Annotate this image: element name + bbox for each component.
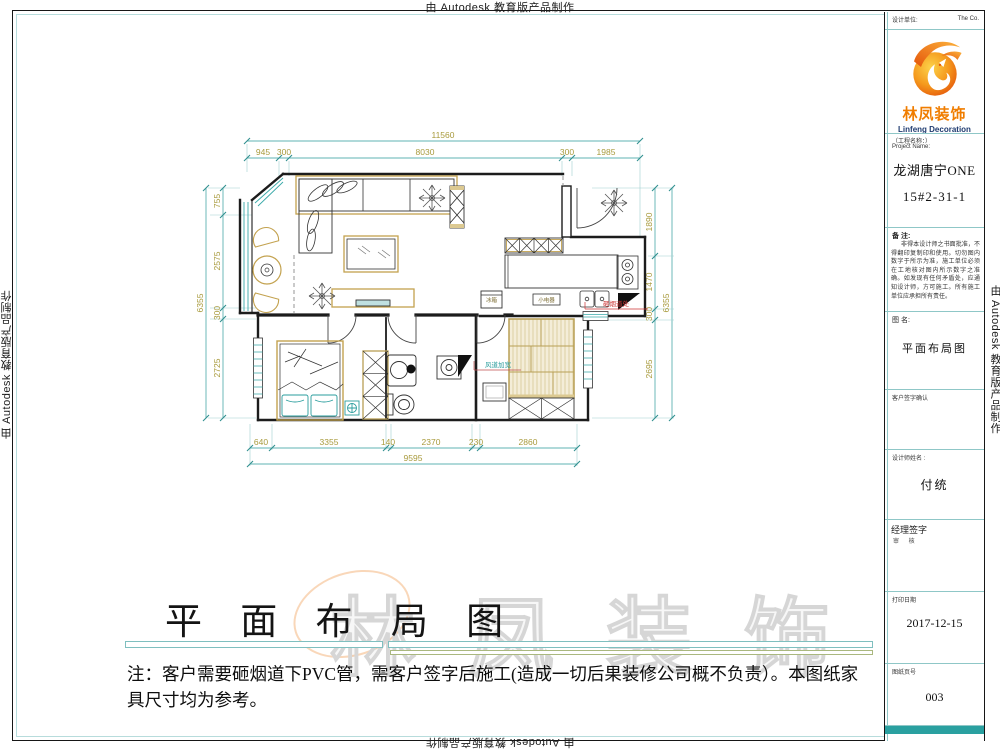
project-row: （工程名称：） Project Name: 龙湖唐宁ONE 15#2-31-1 <box>885 134 984 228</box>
fridge-label: 冰箱 <box>486 296 498 304</box>
svg-text:755: 755 <box>212 194 222 208</box>
dim-bottom-overall: 9595 <box>404 453 423 463</box>
company-name-en: Linfeng Decoration <box>885 125 984 134</box>
manager-review-label: 审 核 <box>893 536 919 545</box>
autodesk-banner-bottom: 由 Autodesk 教育版产品制作 <box>0 735 1000 750</box>
autodesk-banner-right: 由 Autodesk 教育版产品制作 <box>987 285 1000 434</box>
stove <box>617 256 638 289</box>
dim-top-overall: 11560 <box>431 130 454 140</box>
dimension-lines: 11560 945 300 8030 300 1985 6355 755 257… <box>195 130 675 467</box>
page-number-label: 图纸页号 <box>892 667 916 676</box>
toilet <box>386 394 414 415</box>
coffee-table <box>344 236 398 272</box>
svg-text:2725: 2725 <box>212 358 222 377</box>
designer-label: 设计师姓名 : <box>892 453 925 462</box>
construction-note: 注：客户需要砸烟道下PVC管，需客户签字后施工(造成一切后果装修公司概不负责）。… <box>127 661 875 714</box>
drawing-name-row: 图 名: 平面布局图 <box>885 312 984 390</box>
sheet-title: 平 面 布 局 图 <box>165 591 517 645</box>
customer-sign-row: 客户签字确认 <box>885 390 984 450</box>
bed <box>277 341 343 420</box>
title-underline-bar <box>125 641 383 648</box>
print-date-label: 打印日期 <box>892 595 916 604</box>
kitchen-counter <box>505 255 618 288</box>
tv-cabinet <box>332 289 414 307</box>
print-date-row: 打印日期 2017-12-15 <box>885 592 984 664</box>
title-block: 设计单位: The Co. 林凤装饰 <box>884 12 984 741</box>
design-unit-label: 设计单位: <box>892 15 918 24</box>
project-label-en: Project Name: <box>892 144 930 150</box>
hidden-lines <box>294 176 563 313</box>
balcony-table-chairs <box>251 225 281 316</box>
drawing-name-label: 图 名: <box>892 315 910 325</box>
plant-entry <box>601 190 627 216</box>
svg-text:640: 640 <box>254 437 268 447</box>
svg-text:砸烟道处: 砸烟道处 <box>603 299 630 308</box>
svg-text:300: 300 <box>560 147 574 157</box>
autodesk-banner-left: 由 Autodesk 教育版产品制作 <box>0 290 15 439</box>
floor-plan-svg: 11560 945 300 8030 300 1985 6355 755 257… <box>195 120 700 495</box>
design-unit-right-text: The Co. <box>958 16 979 22</box>
company-name-cn: 林凤装饰 <box>885 103 984 124</box>
designer-name: 付统 <box>885 476 984 493</box>
svg-text:3355: 3355 <box>320 437 339 447</box>
kitchen-upper-cabinet <box>505 238 563 253</box>
customer-sign-label: 客户签字确认 <box>892 393 928 402</box>
page-number-value: 003 <box>885 690 984 705</box>
svg-text:300: 300 <box>277 147 291 157</box>
tatami-cabinet <box>509 395 574 420</box>
company-logo-block: 林凤装饰 Linfeng Decoration <box>885 30 984 134</box>
dim-left-overall: 6355 <box>195 293 205 312</box>
wardrobe <box>363 351 388 419</box>
svg-text:风道加宽: 风道加宽 <box>485 360 512 369</box>
designer-row: 设计师姓名 : 付统 <box>885 450 984 520</box>
washing-machine <box>437 356 461 379</box>
svg-text:1890: 1890 <box>644 212 654 231</box>
remark-label: 备 注: <box>892 231 910 241</box>
shoe-cabinet <box>450 186 464 228</box>
title-underline-bar-2 <box>390 650 873 655</box>
svg-text:140: 140 <box>381 437 395 447</box>
svg-text:1985: 1985 <box>597 147 616 157</box>
dim-right-overall: 6355 <box>661 293 671 312</box>
svg-text:945: 945 <box>256 147 270 157</box>
svg-text:230: 230 <box>469 437 483 447</box>
svg-text:2860: 2860 <box>519 437 538 447</box>
kitchen <box>481 238 640 310</box>
project-name: 龙湖唐宁ONE <box>885 160 984 179</box>
flue-annotation-red: 砸烟道处 <box>585 299 648 309</box>
small-appliance-label: 小电器 <box>538 296 555 304</box>
flue-triangle-bath <box>458 355 472 377</box>
svg-text:300: 300 <box>212 306 222 320</box>
bedroom-window <box>254 338 263 398</box>
tatami-room <box>483 319 574 419</box>
tatami-window <box>584 330 593 388</box>
title-block-footer-bar <box>885 726 984 734</box>
svg-text:2575: 2575 <box>212 251 222 270</box>
bathroom <box>386 355 472 415</box>
svg-text:8030: 8030 <box>416 147 435 157</box>
plant-living-2 <box>309 283 335 309</box>
project-unit-number: 15#2-31-1 <box>885 189 984 205</box>
autodesk-banner-top: 由 Autodesk 教育版产品制作 <box>0 0 1000 15</box>
drawing-name-value: 平面布局图 <box>885 340 984 356</box>
title-underline-bar <box>388 641 873 648</box>
remark-row: 备 注: 非得本设计师之书面批准，不得翻印复制印和使用。切勿图内数字于所示为准，… <box>885 228 984 312</box>
svg-text:2695: 2695 <box>644 359 654 378</box>
print-date-value: 2017-12-15 <box>885 616 984 631</box>
svg-text:2370: 2370 <box>422 437 441 447</box>
sofa <box>296 176 457 253</box>
phoenix-logo-icon <box>900 32 970 102</box>
manager-row: 经理签字 审 核 <box>885 520 984 592</box>
washbasin <box>387 355 416 386</box>
bedroom <box>277 341 388 420</box>
remark-text: 非得本设计师之书面批准，不得翻印复制印和使用。切勿图内数字于所示为准，施工单位必… <box>891 241 980 301</box>
plant-living-1 <box>419 185 445 211</box>
kitchen-window <box>583 312 608 321</box>
nightstand <box>345 401 359 415</box>
design-unit-row: 设计单位: The Co. <box>885 12 984 30</box>
manager-sign-label: 经理签字 <box>891 523 927 536</box>
page-number-row: 图纸页号 003 <box>885 664 984 726</box>
drawing-sheet: 由 Autodesk 教育版产品制作 由 Autodesk 教育版产品制作 由 … <box>0 0 1000 750</box>
